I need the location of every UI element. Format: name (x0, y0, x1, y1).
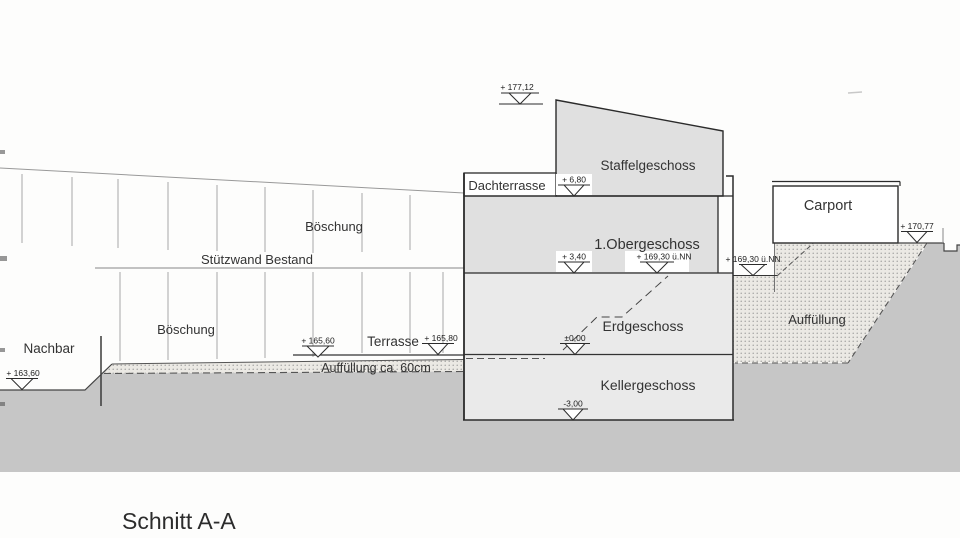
level-marker-staffel: + 6,80 (556, 174, 592, 196)
label-staffelgeschoss: Staffelgeschoss (600, 158, 695, 173)
level-marker-og: + 3,40 (556, 251, 592, 273)
basement-groundfloor-block (464, 273, 733, 420)
edge-tick (0, 402, 5, 406)
edge-tick (0, 256, 7, 261)
drawing-title: Schnitt A-A (122, 508, 236, 534)
level-marker-og-nn: + 169,30 ü.NN (625, 251, 692, 273)
level-text-kg: -3,00 (563, 399, 583, 409)
level-text-slope-foot: + 165,60 (301, 336, 335, 346)
label-nachbar: Nachbar (23, 341, 75, 356)
level-text-terrace: + 165,80 (424, 333, 458, 343)
level-text-og-nn: + 169,30 ü.NN (636, 252, 691, 262)
level-text-eg: ±0,00 (564, 333, 585, 343)
label-dachterrasse: Dachterrasse (468, 178, 545, 193)
label-stuetzwand: Stützwand Bestand (201, 252, 313, 267)
edge-tick (0, 150, 5, 154)
scan-smudge (848, 92, 862, 93)
level-text-nachbar: + 163,60 (6, 368, 40, 378)
label-auffuellung-right: Auffüllung (788, 312, 846, 327)
edge-tick (0, 348, 5, 352)
label-terrasse: Terrasse (367, 334, 419, 349)
carport-box (773, 186, 898, 243)
label-erdgeschoss: Erdgeschoss (603, 318, 684, 334)
level-text-og: + 3,40 (562, 252, 586, 262)
label-kellergeschoss: Kellergeschoss (601, 377, 696, 393)
label-carport: Carport (804, 198, 852, 214)
level-text-staffel: + 6,80 (562, 175, 586, 185)
label-boeschung-lower: Böschung (157, 322, 215, 337)
label-obergeschoss: 1.Obergeschoss (594, 237, 700, 253)
section-drawing: + 177,12 + 6,80 + 3,40 + 169,30 ü.NN + 1… (0, 0, 960, 538)
level-text-roof: + 177,12 (500, 82, 534, 92)
level-text-carport: + 170,77 (900, 221, 934, 231)
label-auffuellung-strip: Auffüllung ca. 60cm (321, 361, 431, 375)
level-text-ground-right: + 169,30 ü.NN (725, 254, 780, 264)
label-boeschung-upper: Böschung (305, 219, 363, 234)
